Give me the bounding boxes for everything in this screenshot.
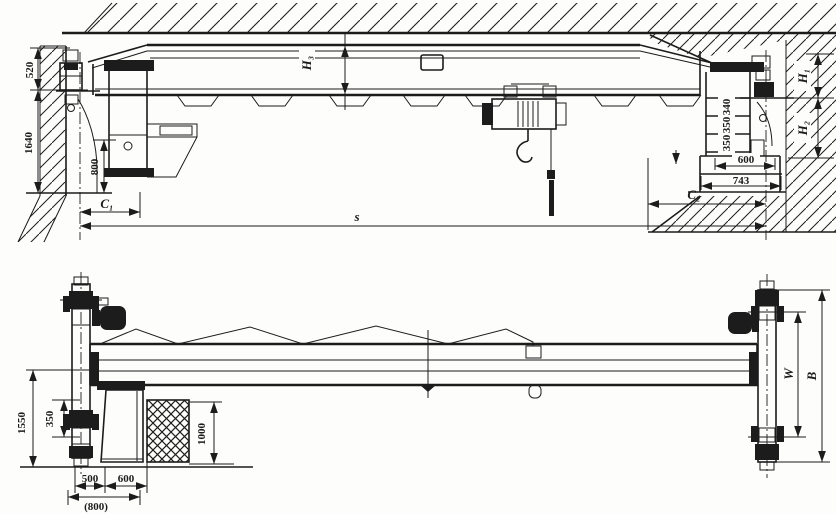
electric-hoist xyxy=(482,84,566,216)
dim-520-label: 520 xyxy=(24,61,36,78)
dim-1640-label: 1640 xyxy=(23,132,35,155)
pendant-control xyxy=(549,180,554,216)
dim-b-label: B xyxy=(804,371,819,381)
dim-span-label: s xyxy=(353,209,359,224)
dim-w-label: W xyxy=(781,367,796,380)
dim-c1-label: C₁ xyxy=(100,196,113,211)
dim-800-label: 800 xyxy=(89,158,101,175)
girder-stiffener-marks xyxy=(177,95,701,106)
plan-right-wheel-bottom xyxy=(755,444,779,460)
dim-ladder-top-label: 340 xyxy=(721,98,733,115)
dim-c2-label: C₂ xyxy=(687,187,700,202)
plan-left-wheel-bottom xyxy=(69,410,93,428)
main-girder xyxy=(88,45,712,106)
dim-ladder-bot-label: 350 xyxy=(721,134,733,151)
drawing-page: 520 1640 800 C₁ s H₃ H₁ H₂ 340 350 350 6… xyxy=(0,0,836,514)
hoist-body xyxy=(492,99,556,129)
hook-icon xyxy=(517,141,532,162)
hoist-position-marker xyxy=(526,346,541,358)
right-wheel xyxy=(754,82,774,97)
dim-1550-label: 1550 xyxy=(16,412,28,435)
dim-ladder-mid-label: 350 xyxy=(721,116,733,133)
plan-right-wheel-top xyxy=(755,290,779,306)
plan-electrical-cabinet xyxy=(147,400,189,462)
right-end-carriage xyxy=(688,62,786,192)
dim-1000-label: 1000 xyxy=(196,423,208,446)
dim-600b-label: 600 xyxy=(118,473,135,485)
plan-right-travel-motor xyxy=(728,312,752,334)
dim-600-label: 600 xyxy=(738,154,755,166)
dim-800alt-label: (800) xyxy=(84,501,108,513)
dim-743-label: 743 xyxy=(733,175,750,187)
girder-web-opening xyxy=(421,55,443,70)
plan-girder xyxy=(90,326,758,398)
dim-h2-label: H₂ xyxy=(795,121,810,137)
dim-350-label: 350 xyxy=(44,410,56,427)
crane-technical-drawing: 520 1640 800 C₁ s H₃ H₁ H₂ 340 350 350 6… xyxy=(0,0,836,514)
dim-500-label: 500 xyxy=(82,473,99,485)
left-end-carriage xyxy=(104,60,197,177)
hoist-motor xyxy=(482,103,493,125)
plan-left-travel-motor xyxy=(100,306,126,330)
dim-h1-label: H₁ xyxy=(795,69,810,85)
plan-suspension-frame xyxy=(97,381,145,462)
plan-right-end-truck xyxy=(728,274,788,478)
ceiling-structure xyxy=(62,3,836,33)
bottom-view-dimensions: 1550 350 500 600 (800) 1000 W B xyxy=(16,290,830,513)
dim-h3-label: H₃ xyxy=(299,56,314,72)
